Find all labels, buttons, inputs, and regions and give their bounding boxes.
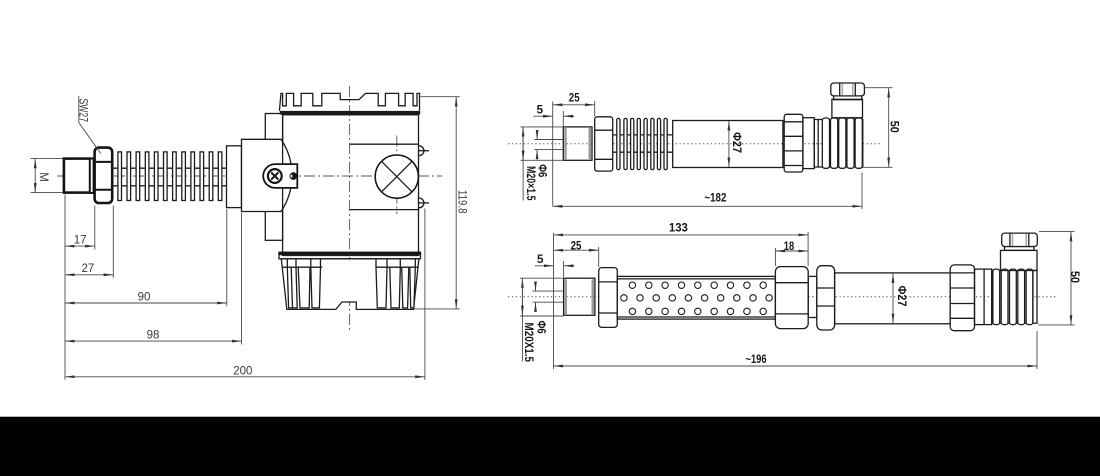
svg-text:17: 17 <box>74 235 87 247</box>
svg-text:M20X1.5: M20X1.5 <box>522 323 534 363</box>
svg-text:27: 27 <box>82 263 95 275</box>
svg-text:Φ6: Φ6 <box>536 164 548 177</box>
svg-text:133: 133 <box>669 223 688 235</box>
svg-text:119.8: 119.8 <box>455 190 467 214</box>
svg-text:M20×1.5: M20×1.5 <box>524 166 536 201</box>
svg-text:25: 25 <box>571 240 582 252</box>
svg-text:18: 18 <box>784 241 795 253</box>
svg-text:M: M <box>37 172 49 182</box>
svg-text:~182: ~182 <box>704 192 726 204</box>
svg-text:5: 5 <box>537 254 544 266</box>
svg-text:5: 5 <box>537 105 544 117</box>
svg-text:Φ27: Φ27 <box>730 132 742 153</box>
svg-text:90: 90 <box>138 291 151 303</box>
svg-text:Φ6: Φ6 <box>534 321 546 334</box>
svg-text:50: 50 <box>1068 271 1080 283</box>
svg-text:50: 50 <box>887 121 899 133</box>
svg-text:25: 25 <box>569 93 580 105</box>
svg-text:200: 200 <box>233 365 252 377</box>
svg-text:Φ27: Φ27 <box>895 286 907 307</box>
svg-text:SW27: SW27 <box>77 99 89 123</box>
svg-text:~196: ~196 <box>746 354 767 366</box>
svg-text:98: 98 <box>147 330 160 342</box>
